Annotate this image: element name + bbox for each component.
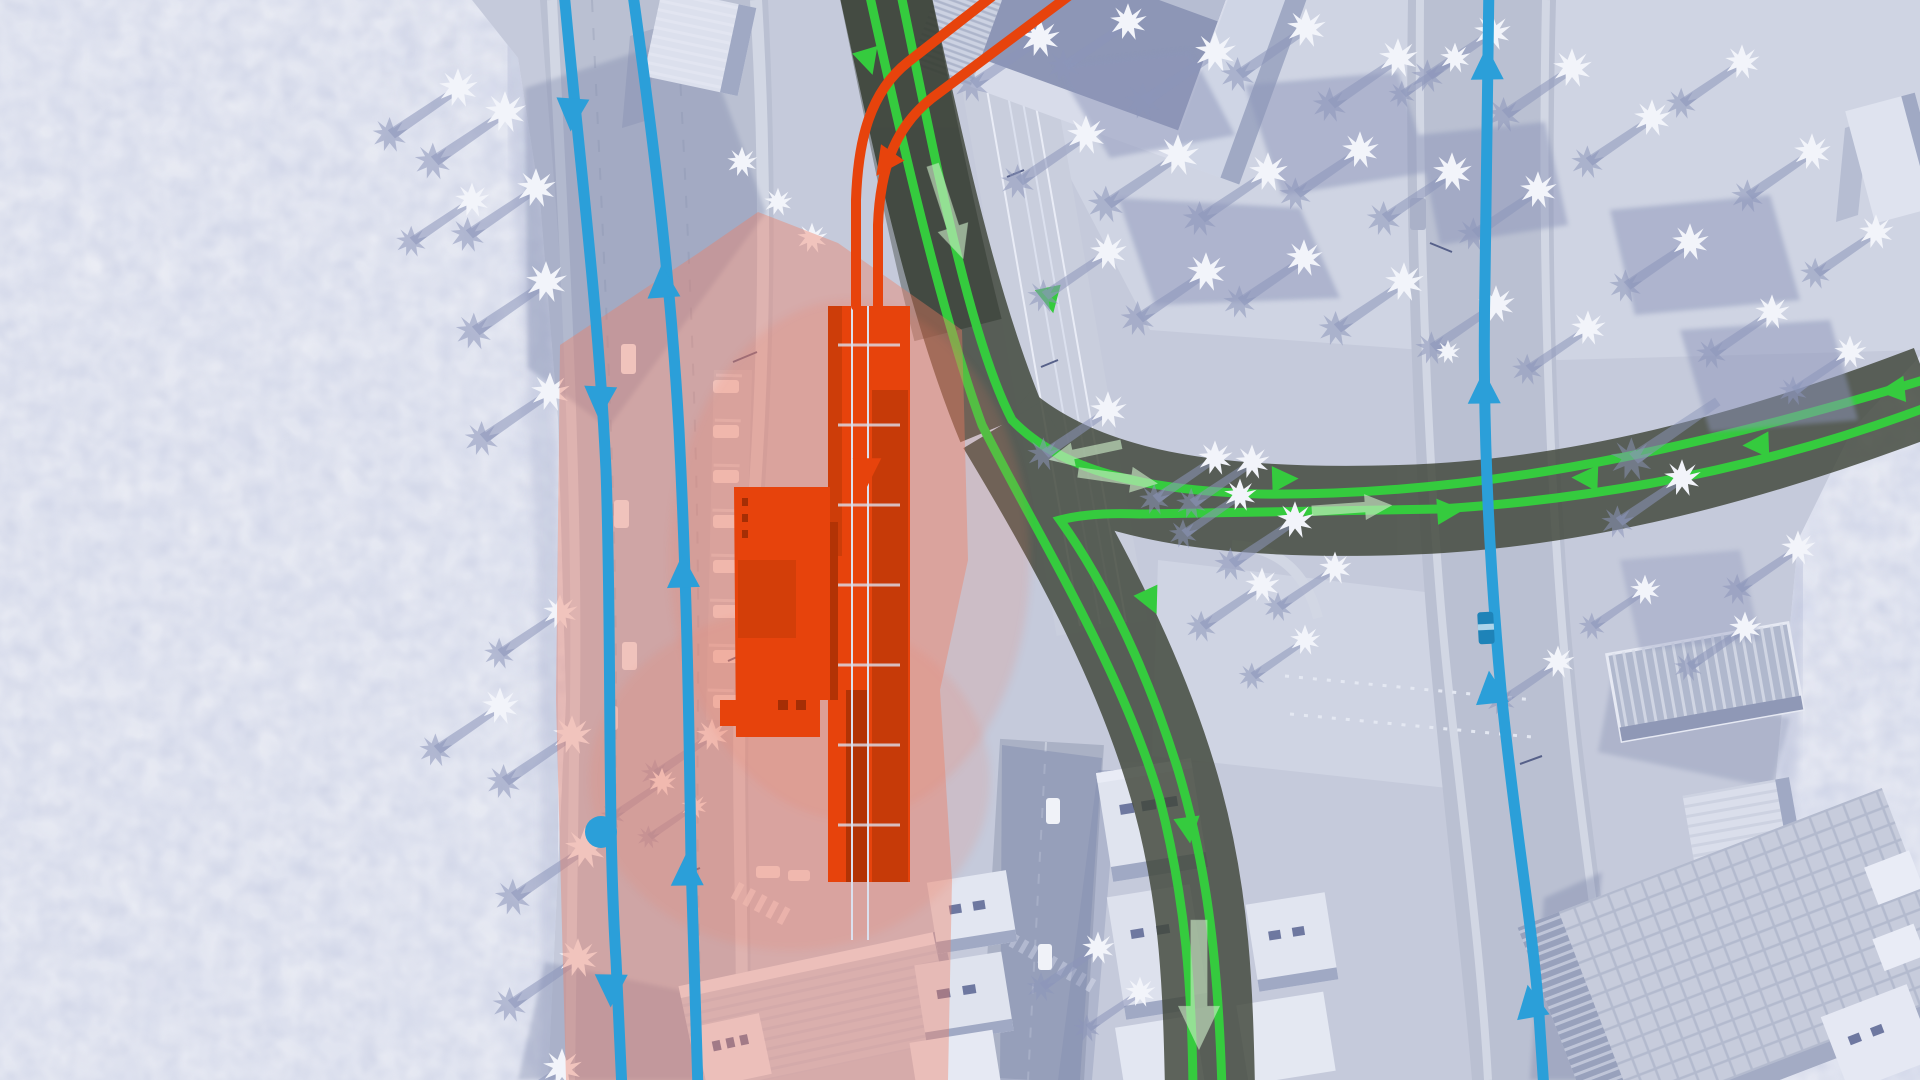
- small-building[interactable]: [1246, 892, 1339, 991]
- transit-stop-node[interactable]: [585, 816, 617, 848]
- game-viewport[interactable]: [0, 0, 1920, 1080]
- selected-station-building[interactable]: [720, 487, 838, 737]
- transit-vehicle[interactable]: [1477, 612, 1495, 645]
- city-map-canvas[interactable]: [0, 0, 1920, 1080]
